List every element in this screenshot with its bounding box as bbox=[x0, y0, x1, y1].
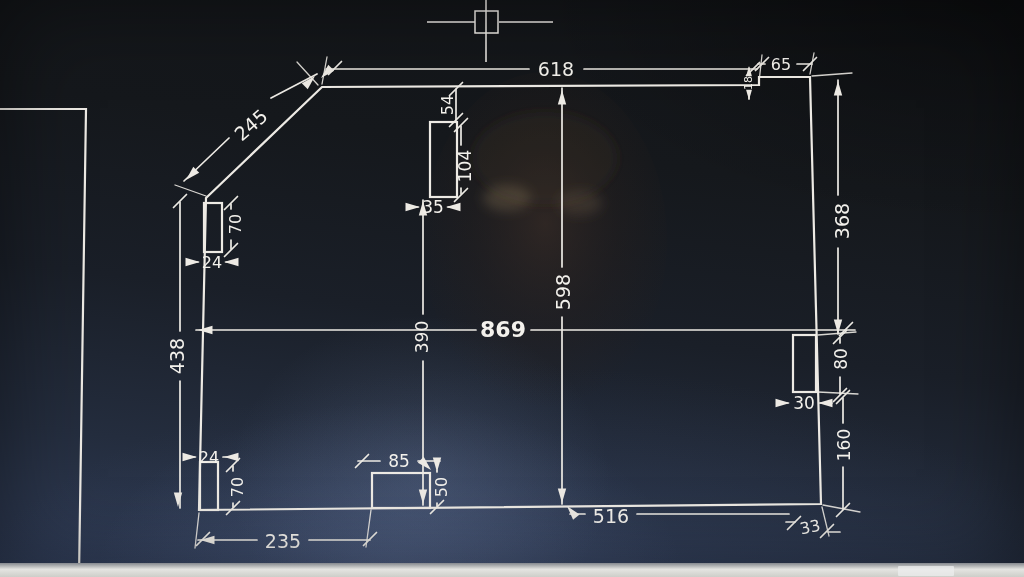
dim-right-opening-width: 30 bbox=[793, 393, 815, 413]
dim-right-opening-height: 80 bbox=[831, 348, 851, 370]
dim-right-wall-lower: 160 bbox=[834, 429, 854, 461]
dim-top-opening-offset: 54 bbox=[438, 95, 457, 115]
monitor-bezel bbox=[0, 563, 1024, 577]
monitor-photo: 618 65 18 245 54 104 35 70 24 438 869 59… bbox=[0, 0, 1024, 577]
opening-rect-bottom-left bbox=[200, 462, 218, 510]
dim-left-wall: 438 bbox=[166, 338, 188, 374]
dim-bottom-opening-width: 85 bbox=[388, 451, 410, 471]
dim-top-opening-height: 104 bbox=[455, 150, 475, 182]
dim-top-right-edge: 65 bbox=[771, 55, 791, 74]
dim-chamfer: 245 bbox=[230, 105, 272, 145]
dim-overall-width: 869 bbox=[480, 317, 526, 342]
cad-canvas[interactable]: 618 65 18 245 54 104 35 70 24 438 869 59… bbox=[0, 0, 1024, 577]
dim-center-height: 598 bbox=[552, 274, 574, 310]
dim-bottom-right-edge: 516 bbox=[593, 505, 629, 527]
dim-left-opening-width: 24 bbox=[202, 253, 222, 272]
bezel-highlight bbox=[898, 566, 954, 576]
dim-right-wall-upper: 368 bbox=[831, 203, 853, 239]
crosshair-pickbox-icon bbox=[427, 0, 553, 62]
dim-left-opening-height: 70 bbox=[226, 214, 245, 234]
dim-top-edge: 618 bbox=[538, 58, 574, 80]
glasses-glint-right bbox=[558, 191, 602, 215]
opening-rect-right bbox=[793, 335, 816, 392]
dim-bottom-right-corner: 33 bbox=[798, 516, 822, 539]
dim-bottom-opening-height: 50 bbox=[432, 477, 451, 497]
glasses-glint-left bbox=[483, 185, 531, 211]
dim-top-opening-gap: 35 bbox=[422, 197, 444, 217]
dim-left-center-height: 390 bbox=[412, 321, 432, 353]
screen-reflection bbox=[230, 72, 667, 577]
dim-top-step: 18 bbox=[742, 76, 755, 90]
partial-shape-left-edge bbox=[0, 109, 86, 577]
dim-bottom-left-edge: 235 bbox=[265, 530, 301, 552]
dim-bottom-left-opening-width: 24 bbox=[199, 448, 219, 467]
dim-bottom-left-opening-height: 70 bbox=[228, 477, 247, 497]
